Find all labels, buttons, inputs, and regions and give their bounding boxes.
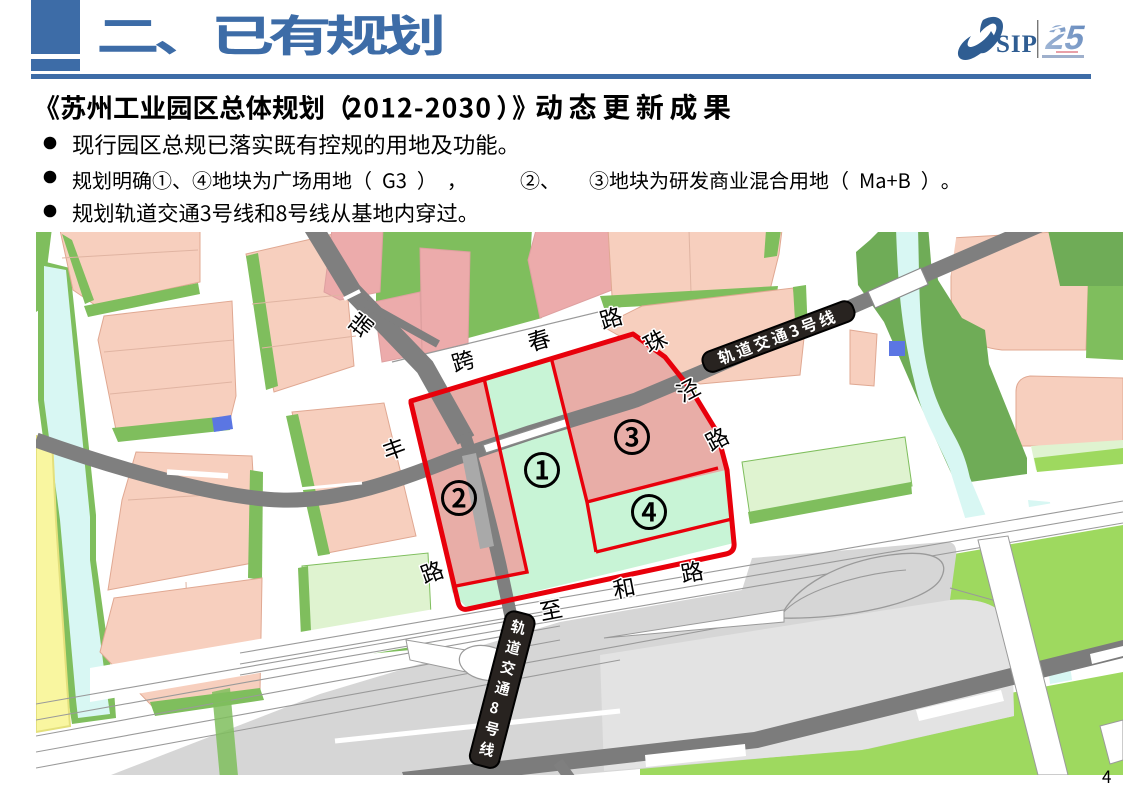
svg-text:SIP: SIP — [996, 31, 1038, 58]
